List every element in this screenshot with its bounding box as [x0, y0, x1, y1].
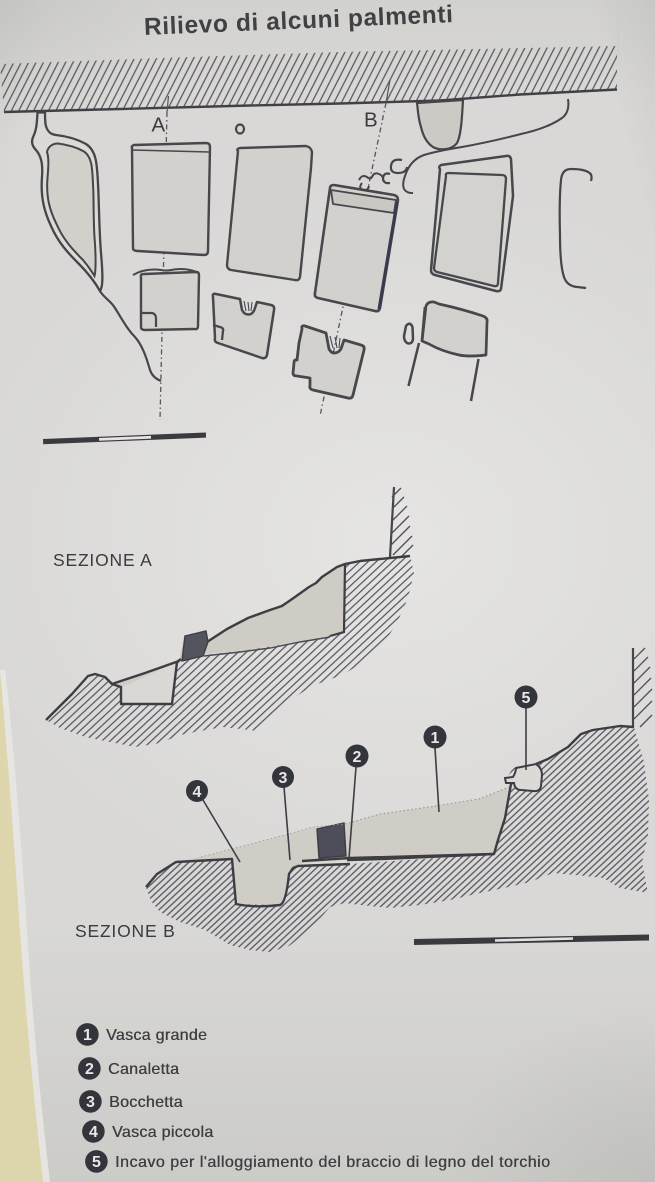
svg-text:B: B — [364, 109, 378, 132]
svg-text:A: A — [152, 114, 166, 137]
svg-text:SEZIONE A: SEZIONE A — [53, 550, 153, 570]
svg-text:SEZIONE B: SEZIONE B — [75, 921, 176, 941]
svg-text:1: 1 — [431, 730, 440, 747]
svg-text:2: 2 — [353, 749, 362, 766]
svg-text:3: 3 — [85, 1094, 94, 1111]
svg-text:4: 4 — [193, 784, 202, 801]
svg-text:5: 5 — [91, 1154, 100, 1171]
svg-text:5: 5 — [522, 690, 531, 707]
svg-text:4: 4 — [88, 1124, 97, 1141]
svg-text:2: 2 — [84, 1061, 93, 1078]
svg-text:3: 3 — [279, 770, 288, 787]
svg-text:1: 1 — [82, 1027, 91, 1044]
